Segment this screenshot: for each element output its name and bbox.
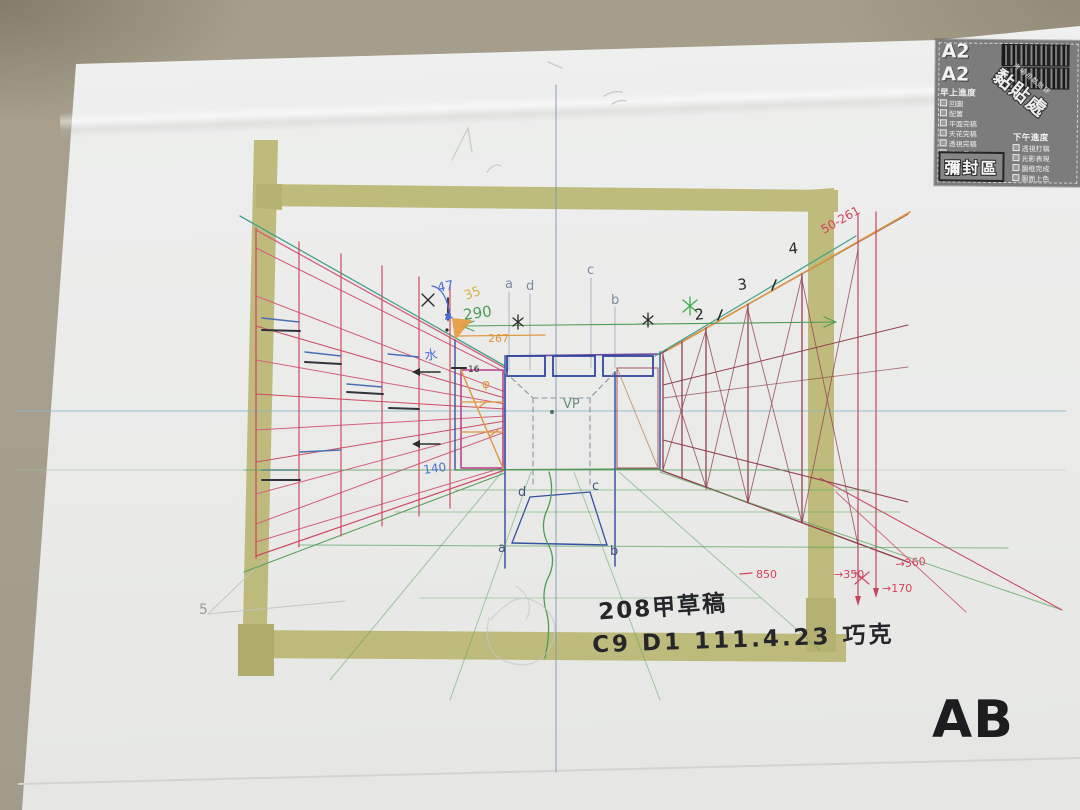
vp-label: VP	[563, 397, 580, 412]
right-wall-panels	[655, 212, 1062, 612]
checklist-item: 天花完稿	[940, 129, 1002, 140]
vanishing-point-dot	[550, 410, 554, 414]
letter-floor-d: d	[518, 485, 526, 500]
item-label: 天花完稿	[949, 130, 977, 138]
checkbox-icon	[1013, 144, 1020, 151]
letter-top-b: b	[611, 293, 619, 308]
checkbox-icon	[1012, 164, 1019, 171]
letter-floor-b: b	[610, 544, 618, 559]
pencil-scribbles	[452, 62, 626, 665]
seal-area-label: 彌封區	[938, 151, 1004, 182]
letter-floor-a: a	[498, 541, 506, 556]
desk-surface: VP a d c b a b c d 47 35 290 267 φ 16 2 …	[0, 0, 1080, 810]
checkbox-icon	[1012, 154, 1019, 161]
letter-top-d: d	[526, 279, 534, 294]
afternoon-header: 下午進度	[1013, 134, 1079, 144]
left-wall-shelving	[240, 216, 505, 572]
checkbox-icon	[940, 129, 947, 136]
size-label-1: A2	[942, 42, 970, 61]
red-360: →360	[895, 555, 926, 571]
item-label: 配置	[949, 110, 963, 118]
item-label: 平面完稿	[949, 120, 977, 128]
checkbox-icon	[940, 99, 947, 106]
checklist-item: 配置	[940, 109, 1002, 120]
letter-top-a: a	[505, 277, 513, 292]
dim-290: 290	[462, 302, 493, 324]
checkbox-icon	[940, 109, 947, 116]
dim-35: 35	[462, 284, 483, 304]
item-label: 光影表現	[1021, 155, 1049, 163]
checklist-item: 圖面上色	[1012, 174, 1078, 185]
red-170: →170	[882, 582, 912, 595]
checkbox-icon	[1012, 174, 1019, 181]
checklist-item: 圖框完成	[1012, 164, 1078, 175]
checklist-item: 回圖	[940, 99, 1002, 110]
perspective-drawing: VP a d c b a b c d 47 35 290 267 φ 16 2 …	[0, 0, 1080, 810]
checkbox-icon	[940, 139, 947, 146]
morning-checklist: 早上進度 回圖 配置 平面完稿 天花完稿 透視完稿 標註尺寸	[940, 89, 1003, 160]
letter-top-c: c	[587, 263, 594, 278]
corner-label-ab: AB	[932, 690, 1014, 750]
mark-16: 16	[468, 365, 480, 375]
checklist-item: 光影表現	[1012, 154, 1078, 165]
item-label: 圖框完成	[1021, 165, 1049, 173]
item-label: 圖面上色	[1021, 175, 1049, 183]
checklist-item: 平面完稿	[940, 119, 1002, 130]
blue-140: 140	[422, 460, 447, 477]
checklist-item: 透視打稿	[1013, 144, 1079, 155]
red-350: →350	[834, 568, 864, 581]
item-label: 透視完稿	[949, 140, 977, 148]
size-label-2: A2	[941, 65, 969, 84]
gray-5: 5	[199, 602, 208, 618]
checkbox-icon	[940, 119, 947, 126]
exam-sticker: A2 A2 早上進度 回圖 配置 平面完稿 天花完稿 透視完稿 標註尺寸 考場用…	[934, 39, 1080, 187]
morning-header: 早上進度	[940, 89, 1002, 99]
phi-mark: φ	[482, 377, 490, 391]
red-850: 850	[756, 568, 777, 581]
item-label: 透視打稿	[1022, 145, 1050, 153]
afternoon-checklist: 下午進度 透視打稿 光影表現 圖框完成 圖面上色	[1012, 134, 1079, 185]
masking-tape-frame	[238, 140, 846, 676]
dim-267: 267	[488, 332, 509, 345]
blue-water-mark: 水	[424, 348, 439, 364]
seq-2: 2	[694, 305, 705, 324]
seq-4: 4	[788, 239, 799, 258]
checklist-item: 透視完稿	[940, 139, 1002, 150]
item-label: 回圖	[949, 100, 963, 108]
letter-floor-c: c	[592, 479, 599, 494]
seq-3: 3	[737, 275, 748, 294]
dim-47: 47	[436, 278, 455, 296]
